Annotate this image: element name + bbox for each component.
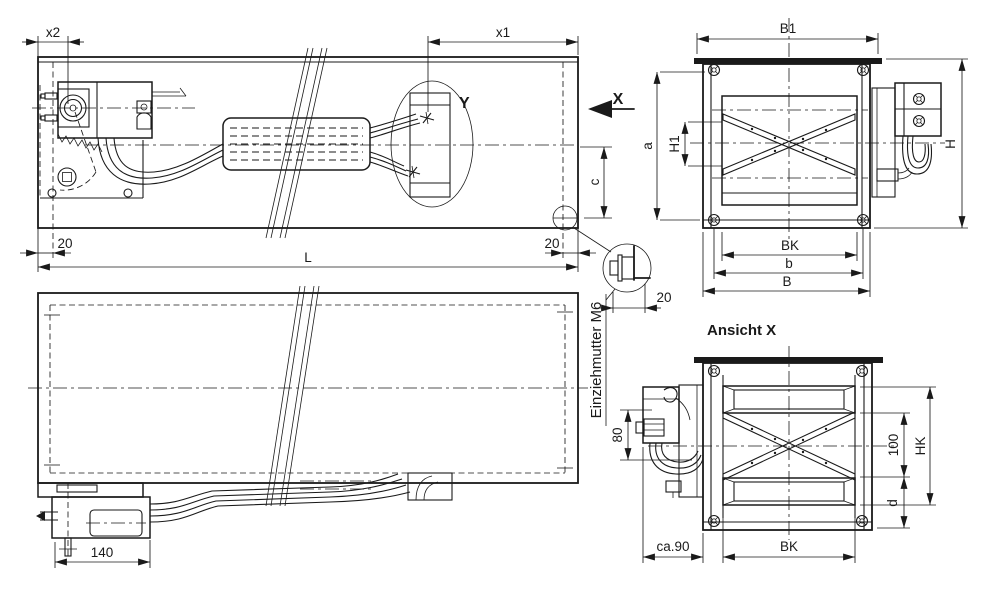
ansicht-x-view: Ansicht X xyxy=(610,322,936,563)
dim-b: b xyxy=(785,256,793,271)
dim-B1: B1 xyxy=(780,21,797,36)
dim-ca90: ca.90 xyxy=(656,539,689,554)
heater-panel xyxy=(722,96,857,205)
view-x-label: X xyxy=(613,91,624,108)
dim-20-detail: 20 xyxy=(656,290,671,305)
detail-y: Y xyxy=(391,81,473,207)
dim-L: L xyxy=(304,250,312,265)
front-view: B1 a H1 H BK b B xyxy=(640,18,968,297)
top-view: Y X x2 x1 20 20 L c xyxy=(20,25,634,272)
dim-20-right: 20 xyxy=(544,236,559,251)
dim-a: a xyxy=(640,142,655,150)
actuator-front-view xyxy=(872,83,941,197)
dim-HK: HK xyxy=(913,437,928,456)
technical-drawing-sheet: Y X x2 x1 20 20 L c xyxy=(0,0,1000,595)
dim-H: H xyxy=(943,139,958,149)
dim-c: c xyxy=(587,178,602,185)
dim-d: d xyxy=(885,499,900,507)
detail-y-label: Y xyxy=(459,95,470,112)
dim-BK-view-x: BK xyxy=(780,539,798,554)
bottom-view-dimensions: 140 xyxy=(55,540,150,568)
dim-BK-front: BK xyxy=(781,238,799,253)
dim-80: 80 xyxy=(610,427,625,442)
view-direction-x: X xyxy=(588,91,634,118)
ansicht-x-title: Ansicht X xyxy=(707,322,776,339)
dim-B: B xyxy=(782,274,791,289)
break-lines-top xyxy=(266,48,327,238)
dim-x2: x2 xyxy=(46,25,60,40)
dim-140: 140 xyxy=(91,545,114,560)
actuator-view-x xyxy=(636,385,703,498)
nut-callout: Einziehmutter M6 xyxy=(588,302,605,419)
dim-H1: H1 xyxy=(667,135,682,152)
dim-x1: x1 xyxy=(496,25,510,40)
drawing-canvas: Y X x2 x1 20 20 L c xyxy=(0,0,1000,595)
bottom-view: 140 xyxy=(28,286,588,568)
actuator-top-view xyxy=(32,82,223,198)
dim-100: 100 xyxy=(886,434,901,457)
dim-20-left: 20 xyxy=(57,236,72,251)
